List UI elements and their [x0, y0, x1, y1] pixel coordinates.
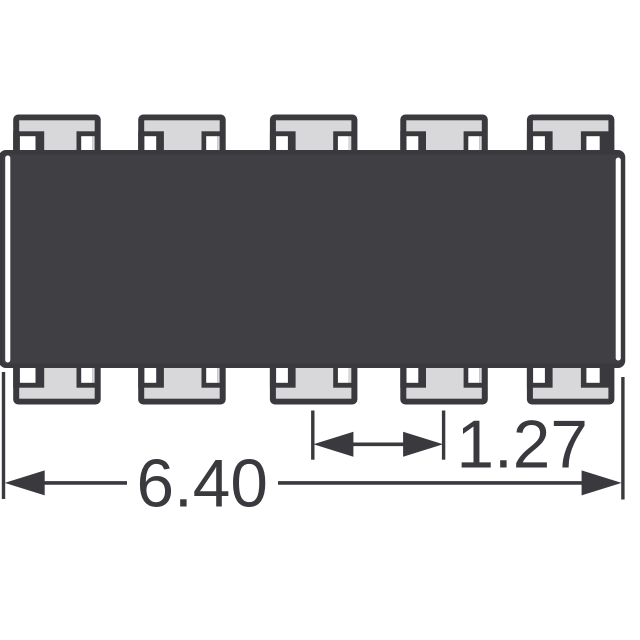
svg-text:1.27: 1.27 — [457, 408, 588, 483]
svg-text:6.40: 6.40 — [137, 447, 268, 522]
